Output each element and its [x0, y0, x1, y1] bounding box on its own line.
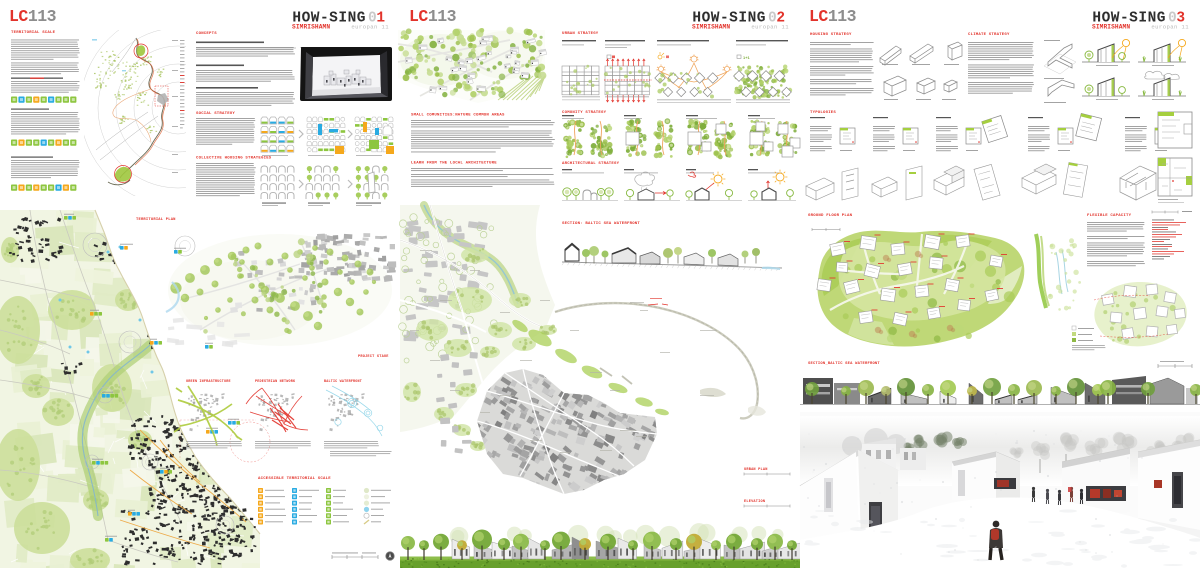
svg-text:TYPOLOGIES: TYPOLOGIES: [810, 111, 836, 115]
svg-text:europan 11: europan 11: [351, 24, 389, 31]
svg-text:SMALL COMUNITIES:NATURE COMMON: SMALL COMUNITIES:NATURE COMMON AREAS: [411, 114, 505, 118]
svg-text:PEDESTRIAN NETWORK: PEDESTRIAN NETWORK: [255, 380, 296, 384]
svg-text:ELEVATION: ELEVATION: [744, 500, 765, 504]
svg-text:SOCIAL STRATEGY: SOCIAL STRATEGY: [196, 112, 235, 116]
svg-text:CONCEPTS: CONCEPTS: [196, 32, 217, 36]
svg-text:europan 11: europan 11: [1151, 24, 1189, 31]
svg-text:SIMRISHAMN: SIMRISHAMN: [692, 24, 730, 31]
svg-text:SECTION: BALTIC SEA WATERFRONT: SECTION: BALTIC SEA WATERFRONT: [562, 222, 640, 226]
svg-text:URBAN PLAN: URBAN PLAN: [744, 468, 768, 472]
svg-text:ACCESSIBLE TERRITORIAL SCALE: ACCESSIBLE TERRITORIAL SCALE: [258, 477, 331, 481]
svg-text:PROJECT STAGE: PROJECT STAGE: [358, 355, 389, 359]
svg-text:LC113: LC113: [409, 7, 457, 26]
svg-text:COMUNITY STRATEGY: COMUNITY STRATEGY: [562, 111, 607, 115]
svg-text:TERRITORIAL SCALE: TERRITORIAL SCALE: [11, 31, 56, 35]
svg-text:HOUSING STRATEGY: HOUSING STRATEGY: [810, 33, 852, 37]
svg-text:europan 11: europan 11: [751, 24, 789, 31]
svg-text:GREEN INFRASTRUCTURE: GREEN INFRASTRUCTURE: [186, 380, 231, 384]
svg-text:CLIMATE STRATEGY: CLIMATE STRATEGY: [968, 33, 1010, 37]
svg-text:LC113: LC113: [9, 7, 57, 26]
svg-text:FLEXIBLE CAPACITY: FLEXIBLE CAPACITY: [1087, 214, 1132, 218]
svg-text:ARCHITECTURAL STRATEGY: ARCHITECTURAL STRATEGY: [562, 162, 620, 166]
svg-text:TERRITORIAL PLAN: TERRITORIAL PLAN: [136, 218, 176, 222]
svg-text:COLLECTIVE HOUSING STRATEGIES: COLLECTIVE HOUSING STRATEGIES: [196, 157, 272, 161]
svg-text:BALTIC WATERFRONT: BALTIC WATERFRONT: [324, 380, 362, 384]
svg-text:LC113: LC113: [809, 7, 857, 26]
svg-text:URBAN STRATEGY: URBAN STRATEGY: [562, 32, 599, 36]
svg-text:LEARN FROM THE LOCAL ARCHITECT: LEARN FROM THE LOCAL ARCHITECTURE: [411, 162, 497, 166]
svg-text:GROUND FLOOR PLAN: GROUND FLOOR PLAN: [808, 214, 853, 218]
svg-text:SECTION_BALTIC SEA WATERFRONT: SECTION_BALTIC SEA WATERFRONT: [808, 362, 880, 366]
svg-text:SIMRISHAMN: SIMRISHAMN: [292, 24, 330, 31]
svg-text:1+1: 1+1: [743, 55, 751, 60]
svg-text:SIMRISHAMN: SIMRISHAMN: [1092, 24, 1130, 31]
